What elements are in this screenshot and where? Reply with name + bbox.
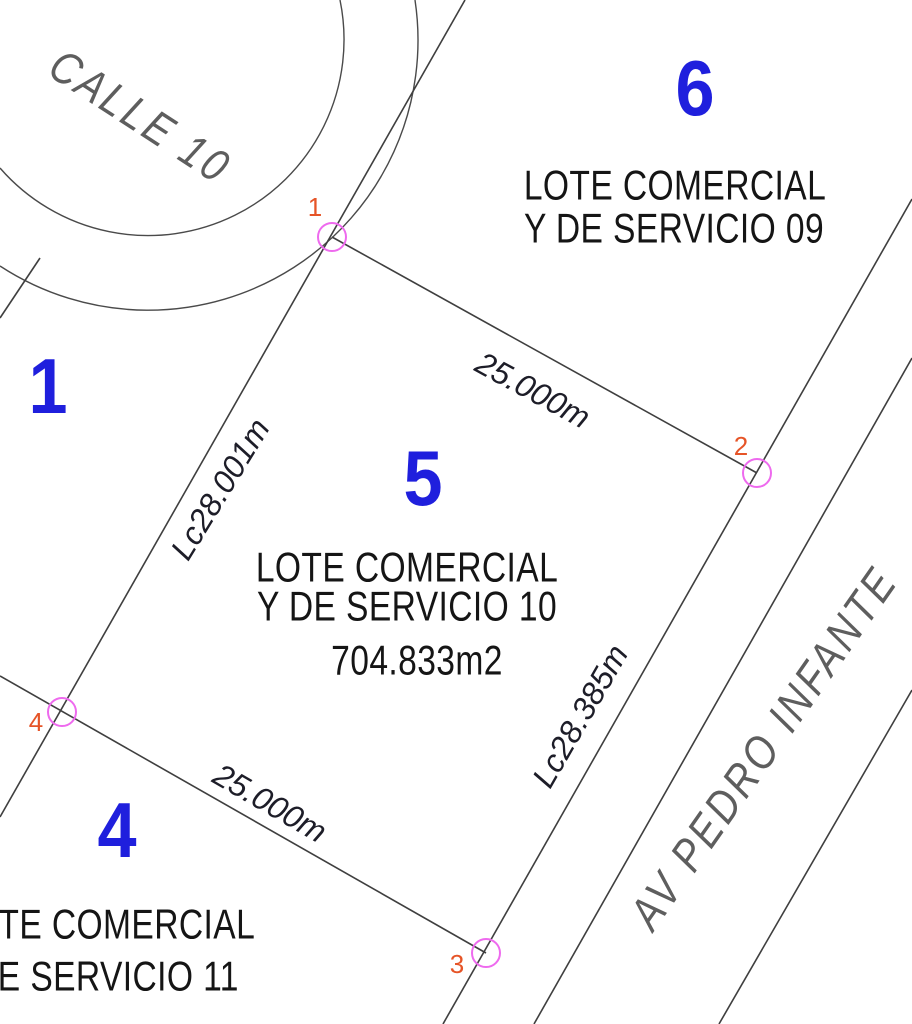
lot4-label-line2: Y DE SERVICIO 11 <box>0 954 239 1000</box>
vertex-3-label: 3 <box>450 949 464 979</box>
street-curve: CALLE 10 <box>0 0 418 318</box>
street-name-av-pedro-infante: AV PEDRO INFANTE <box>618 557 908 941</box>
lot-4: 4 LOTE COMERCIAL Y DE SERVICIO 11 <box>0 786 255 1000</box>
lot-1: 1 <box>28 342 67 429</box>
lot5-number: 5 <box>403 434 442 521</box>
vertex-1-label: 1 <box>308 192 322 222</box>
lot6-label-line2: Y DE SERVICIO 09 <box>524 206 824 252</box>
cadastral-site-plan: CALLE 10 AV PEDRO INFANTE 25.000m Lc28.0… <box>0 0 912 1024</box>
south-edge-dimension: 25.000m <box>206 756 333 850</box>
street-name-calle-10: CALLE 10 <box>40 39 240 194</box>
lot5-north-edge-line <box>332 237 757 473</box>
lot6-number: 6 <box>675 44 714 131</box>
west-edge-dimension: Lc28.001m <box>163 412 276 566</box>
lot4-label-line1: LOTE COMERCIAL <box>0 902 255 948</box>
lot5-area-label: 704.833m2 <box>331 638 503 684</box>
lot5-label-line2: Y DE SERVICIO 10 <box>257 584 557 630</box>
lot5-west-boundary-line <box>0 0 465 817</box>
lot-6: 6 LOTE COMERCIAL Y DE SERVICIO 09 <box>524 44 826 252</box>
vertex-4-label: 4 <box>29 707 43 737</box>
vertex-2-label: 2 <box>734 431 748 461</box>
lot6-label-line1: LOTE COMERCIAL <box>524 163 826 209</box>
lot-5: 5 LOTE COMERCIAL Y DE SERVICIO 10 704.83… <box>256 434 558 684</box>
north-edge-dimension: 25.000m <box>469 344 596 436</box>
lot1-number: 1 <box>28 342 67 429</box>
site-plan-drawing: CALLE 10 AV PEDRO INFANTE 25.000m Lc28.0… <box>0 0 912 1024</box>
corner-boundary-tick <box>0 258 40 318</box>
parcel-boundaries <box>0 0 912 1024</box>
lot4-number: 4 <box>97 786 136 873</box>
